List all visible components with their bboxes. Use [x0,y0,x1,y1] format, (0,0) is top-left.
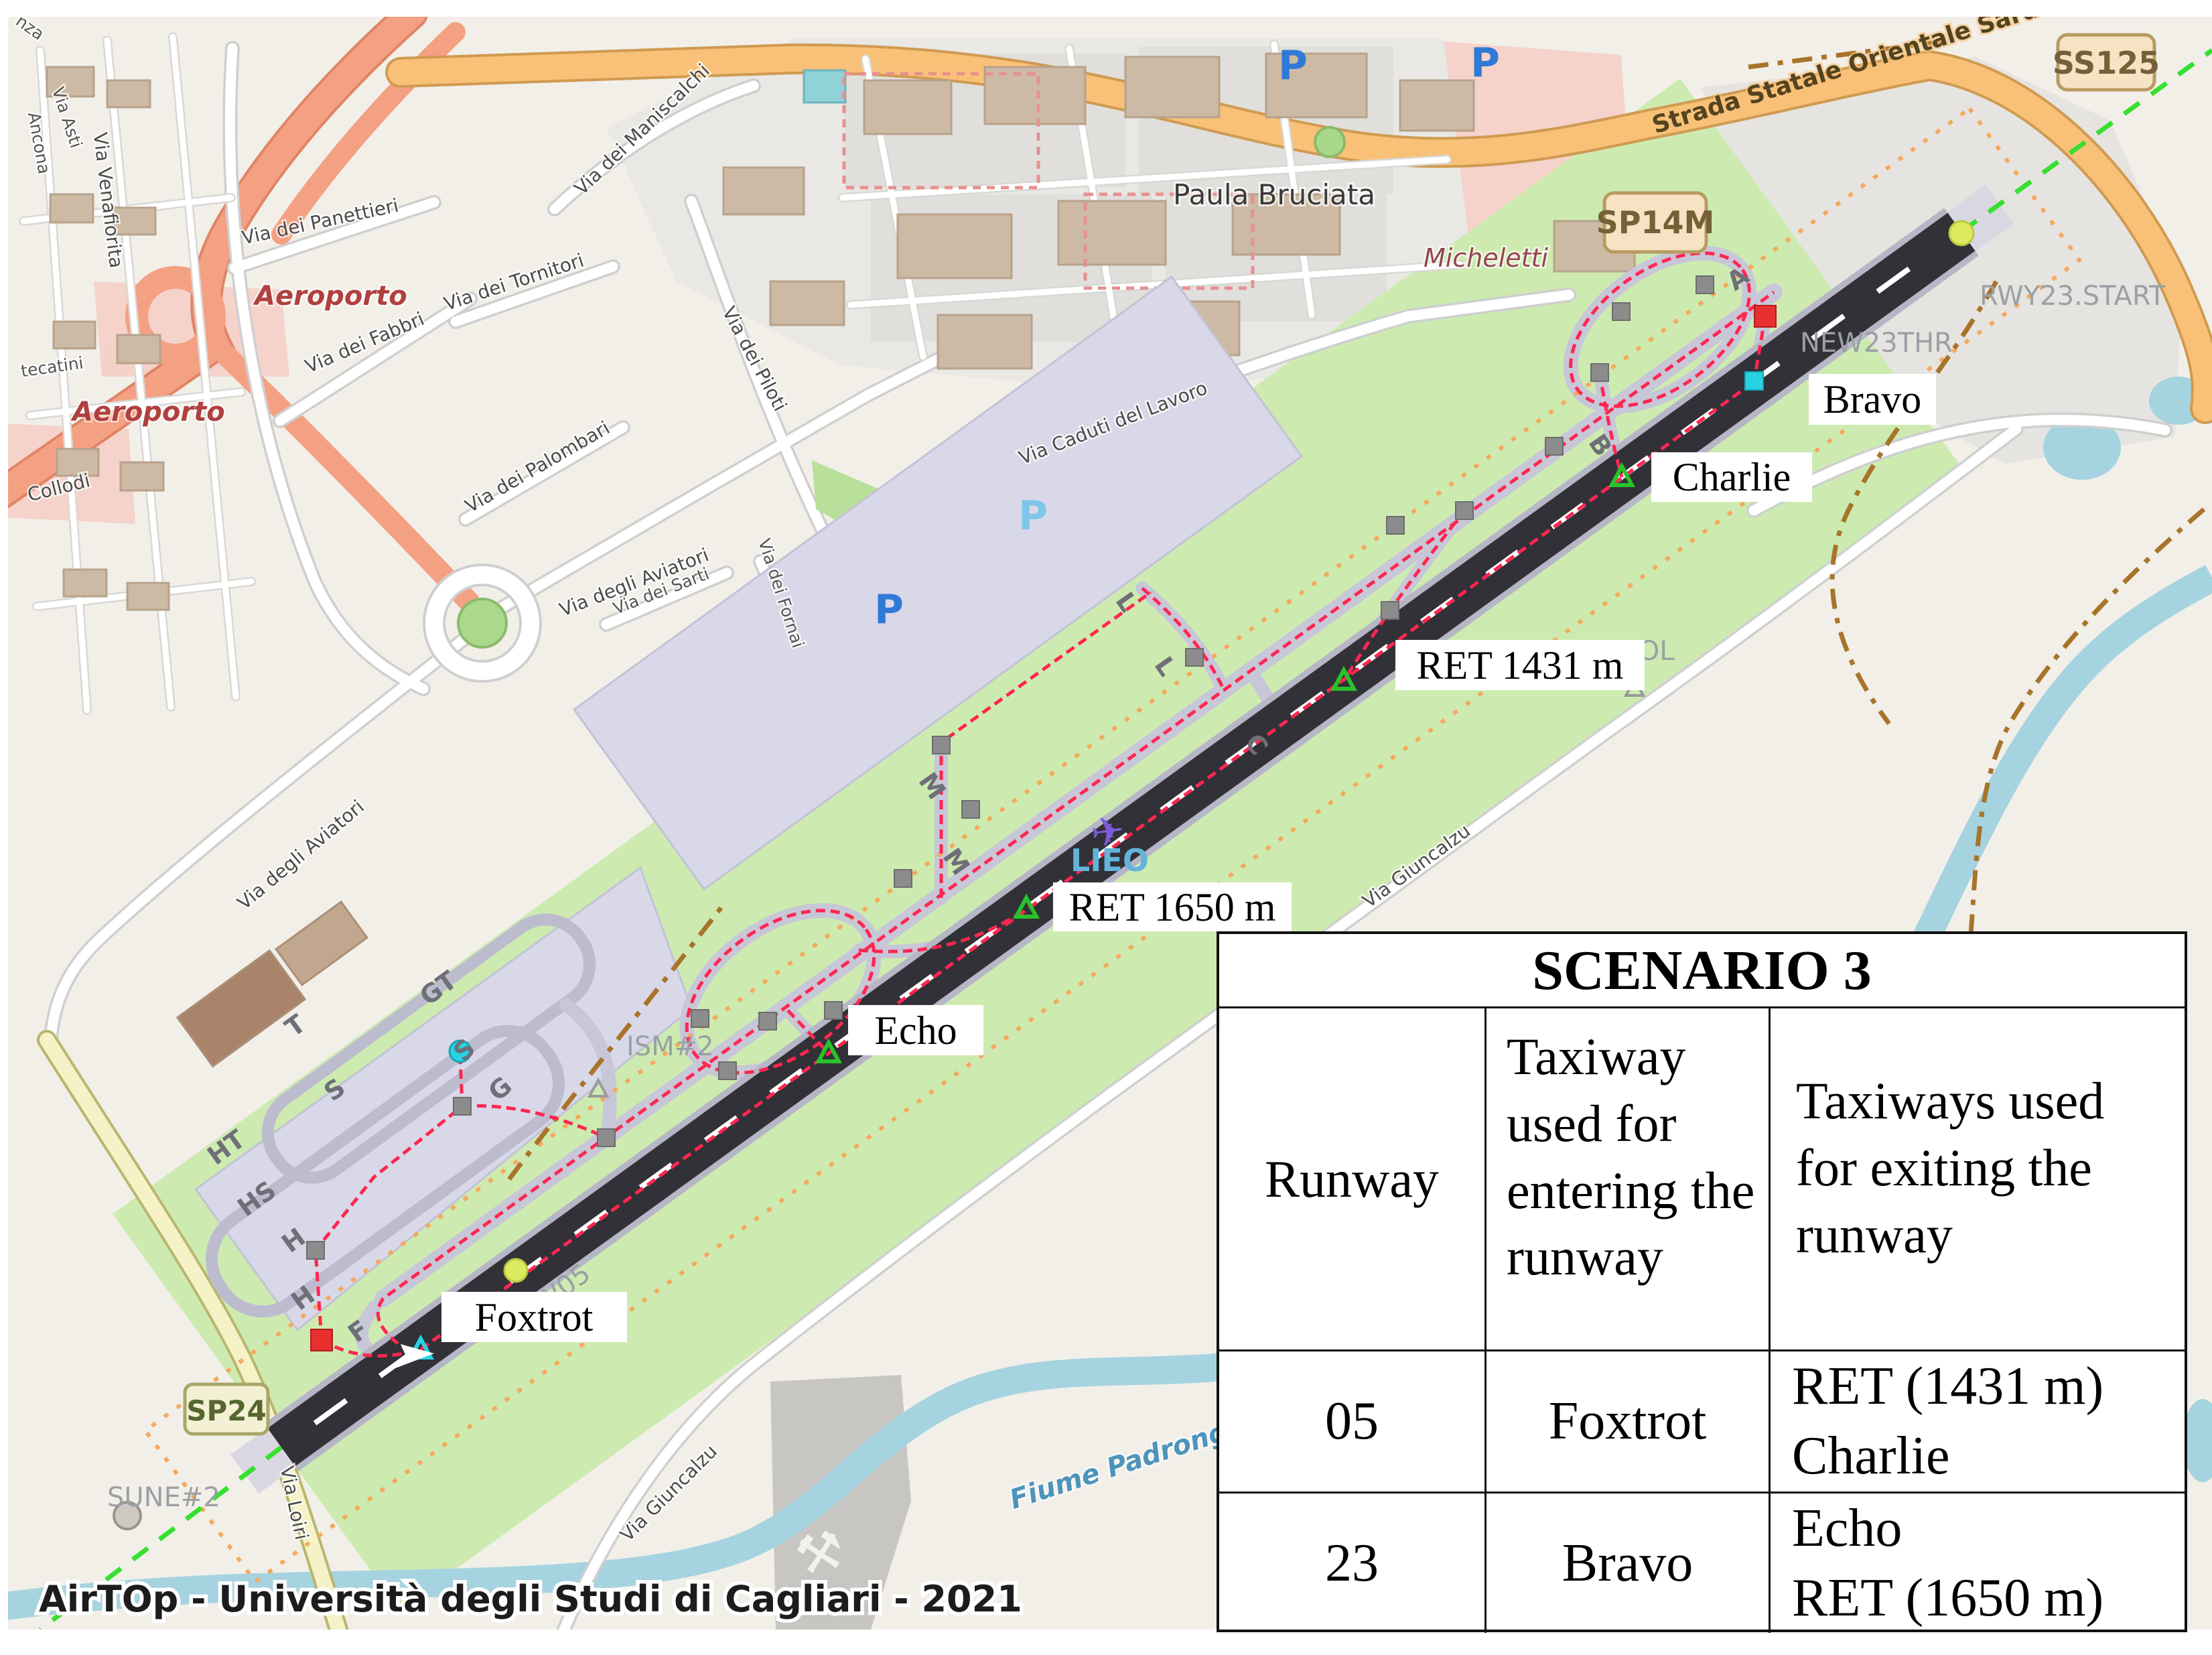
callout-ret1650: RET 1650 m [1069,885,1276,929]
table-cell-entering-23: Bravo [1487,1492,1771,1633]
place-aeroporto-2: Aeroporto [70,397,225,427]
parking-icon: P [874,586,904,633]
table-cell-entering-05: Foxtrot [1487,1349,1771,1492]
label-new23thr: NEW23THR [1800,328,1953,358]
exiting-05-line2: Charlie [1792,1421,1949,1491]
rw05-dot [504,1259,527,1282]
place-aeroporto-1: Aeroporto [253,281,407,312]
callout-echo: Echo [874,1008,957,1053]
rwy23-start-dot [1949,221,1974,245]
callout-bravo: Bravo [1823,377,1922,421]
parking-icon: P [1470,40,1500,86]
table-cell-exiting-05: RET (1431 m) Charlie [1771,1349,2185,1492]
table-title: SCENARIO 3 [1219,934,2185,1006]
teal-building [804,70,845,103]
table-col-header-runway: Runway [1219,1006,1487,1349]
callout-ret1431: RET 1431 m [1417,643,1624,687]
badge-sp24: SP24 [186,1394,266,1427]
exiting-23-line1: Echo [1792,1494,1902,1563]
table-cell-exiting-23: Echo RET (1650 m) [1771,1492,2185,1633]
label-sune2: SUNE#2 [107,1482,220,1513]
parking-icon: P [1018,492,1048,539]
parking-icon: P [1278,42,1308,89]
callout-charlie: Charlie [1673,455,1791,499]
label-ism2: ISM#2 [626,1031,714,1062]
place-paula-bruciata: Paula Bruciata [1173,178,1375,211]
bravo-entry-marker [1745,372,1763,390]
table-cell-runway-05: 05 [1219,1349,1487,1492]
exiting-05-line1: RET (1431 m) [1792,1351,2103,1421]
place-micheletti: Micheletti [1424,243,1548,273]
table-col-header-exiting: Taxiways used for exiting the runway [1771,1006,2185,1349]
badge-sp14m: SP14M [1596,204,1715,241]
table-col-header-entering: Taxiway used for entering the runway [1487,1006,1771,1349]
exiting-23-line2: RET (1650 m) [1792,1563,2103,1633]
callout-foxtrot: Foxtrot [475,1295,594,1339]
badge-ss125: SS125 [2053,45,2160,81]
scenario-table: SCENARIO 3 Runway Taxiway used for enter… [1217,931,2187,1632]
airtop-map-screenshot: ⚒ [0,0,2212,1655]
label-lieo: LIEO [1070,842,1149,878]
attribution-watermark: AirTOp - Università degli Studi di Cagli… [39,1578,1022,1620]
label-rwy23-start: RWY23.START [1980,281,2166,312]
table-cell-runway-23: 23 [1219,1492,1487,1633]
